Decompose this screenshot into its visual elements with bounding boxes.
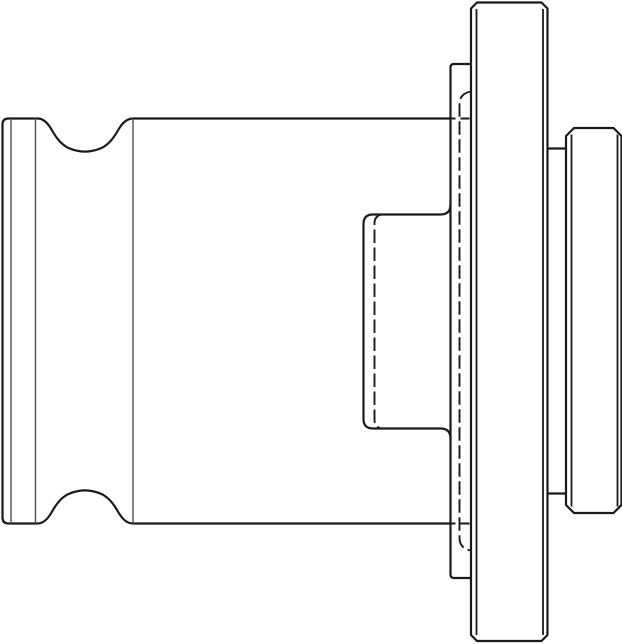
shank-and-body-profile	[3, 119, 451, 524]
technical-drawing-canvas	[0, 0, 622, 644]
flange-outline	[471, 3, 548, 642]
tap-adapter-side-view	[0, 0, 622, 644]
boss-bore-hidden-line	[375, 215, 382, 429]
flange-bore-hidden-line	[460, 92, 472, 551]
drive-knob-outline	[566, 128, 622, 513]
front-disc-outline	[451, 64, 472, 578]
drive-boss-outline	[364, 205, 451, 439]
